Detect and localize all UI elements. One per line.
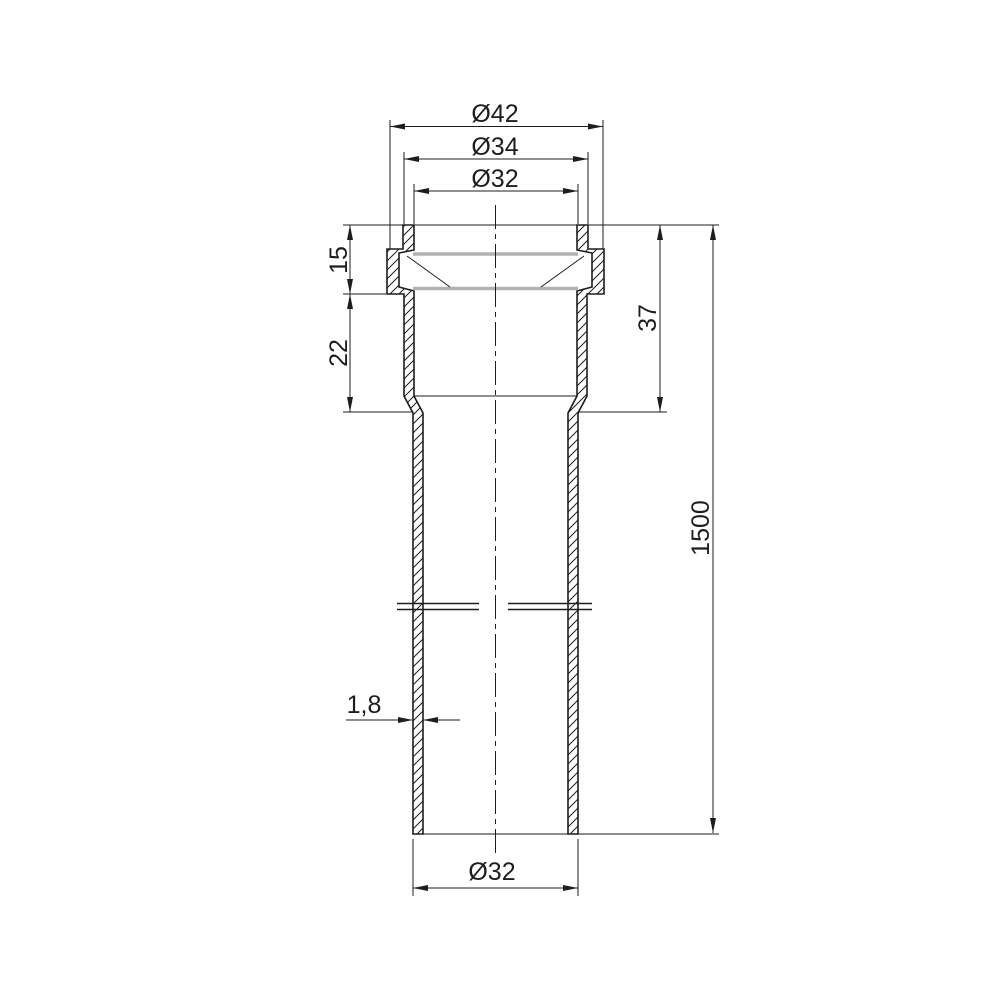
dim-label-bottom-od32: Ø32 [468,858,515,886]
arrow-down [657,397,663,412]
arrow-left [390,124,405,130]
arrow-right [398,717,413,723]
dim-label-22: 22 [325,339,353,367]
arrow-up [347,225,353,240]
pipe-right-wall [568,225,604,834]
drawing-canvas: Ø42 Ø34 Ø32 15 22 37 [0,0,1000,1000]
break-marks [397,604,592,610]
arrow-left [414,188,429,194]
arrow-down [347,279,353,294]
pipe-body [387,205,604,853]
arrow-down [710,818,716,833]
arrow-left [423,717,438,723]
dim-label-od34: Ø34 [471,133,518,161]
arrow-down [347,397,353,412]
arrow-right [588,124,603,130]
pipe-left-wall [387,225,423,834]
dim-label-od42: Ø42 [471,100,518,128]
arrow-up [657,225,663,240]
dim-label-id32: Ø32 [471,165,518,193]
arrow-up [347,294,353,309]
arrow-up [710,225,716,240]
arrow-right [563,885,578,891]
arrow-right [573,156,588,162]
pipe-technical-drawing: Ø42 Ø34 Ø32 15 22 37 [0,0,1000,1000]
arrow-left [413,885,428,891]
dim-label-1500: 1500 [687,500,715,556]
dim-label-15: 15 [325,246,353,274]
arrow-left [404,156,419,162]
dimension-total-length-1500: 1500 [413,225,719,834]
arrow-right [563,188,578,194]
gasket-seat-chamfer-right [541,256,584,287]
gasket-seat-chamfer-left [407,256,450,287]
dim-label-37: 37 [634,304,662,332]
dimension-socket-body-22: 22 [325,294,412,412]
dimension-rim-height-15: 15 [325,225,353,294]
dimension-wall-thickness-18: 1,8 [346,691,460,723]
dim-label-18: 1,8 [347,691,382,719]
